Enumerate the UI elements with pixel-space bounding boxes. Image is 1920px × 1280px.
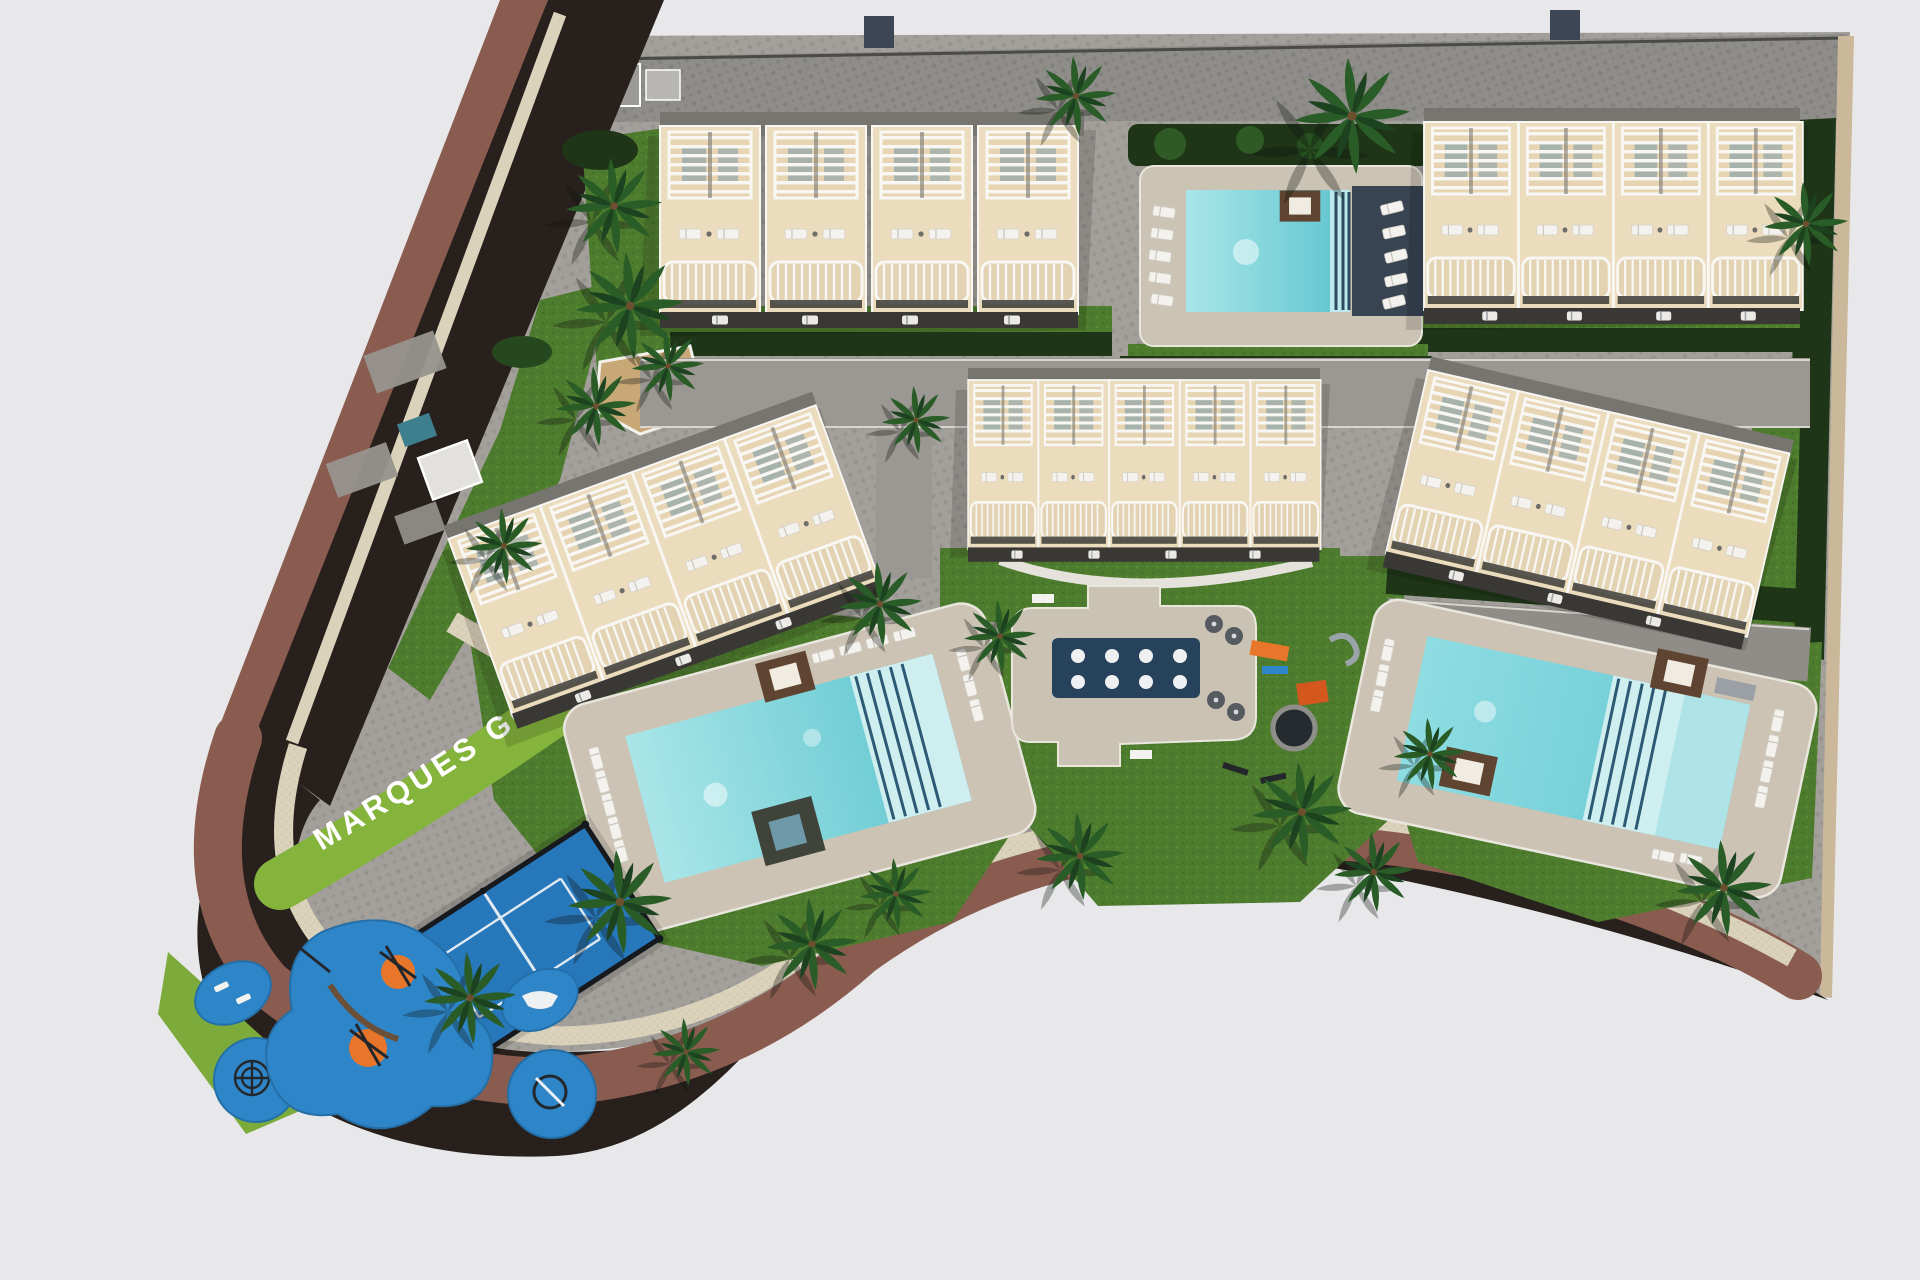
- pool-water: [1186, 190, 1350, 312]
- building-block-b: [1406, 108, 1808, 330]
- building-block-a: [640, 112, 1096, 336]
- central-plaza: [1012, 586, 1256, 766]
- site-plan-render: MARQUES GOLF: [0, 0, 1920, 1280]
- connector-path: [876, 428, 932, 578]
- climbing-dome: [235, 1061, 269, 1095]
- plaza-bench: [1032, 594, 1054, 603]
- spa-circle: [1273, 707, 1315, 749]
- splash-pool: [1052, 638, 1200, 698]
- plaza-bench: [1130, 750, 1152, 759]
- building-block-c: [950, 368, 1330, 562]
- aerial-render-canvas: MARQUES GOLF: [0, 0, 1920, 1280]
